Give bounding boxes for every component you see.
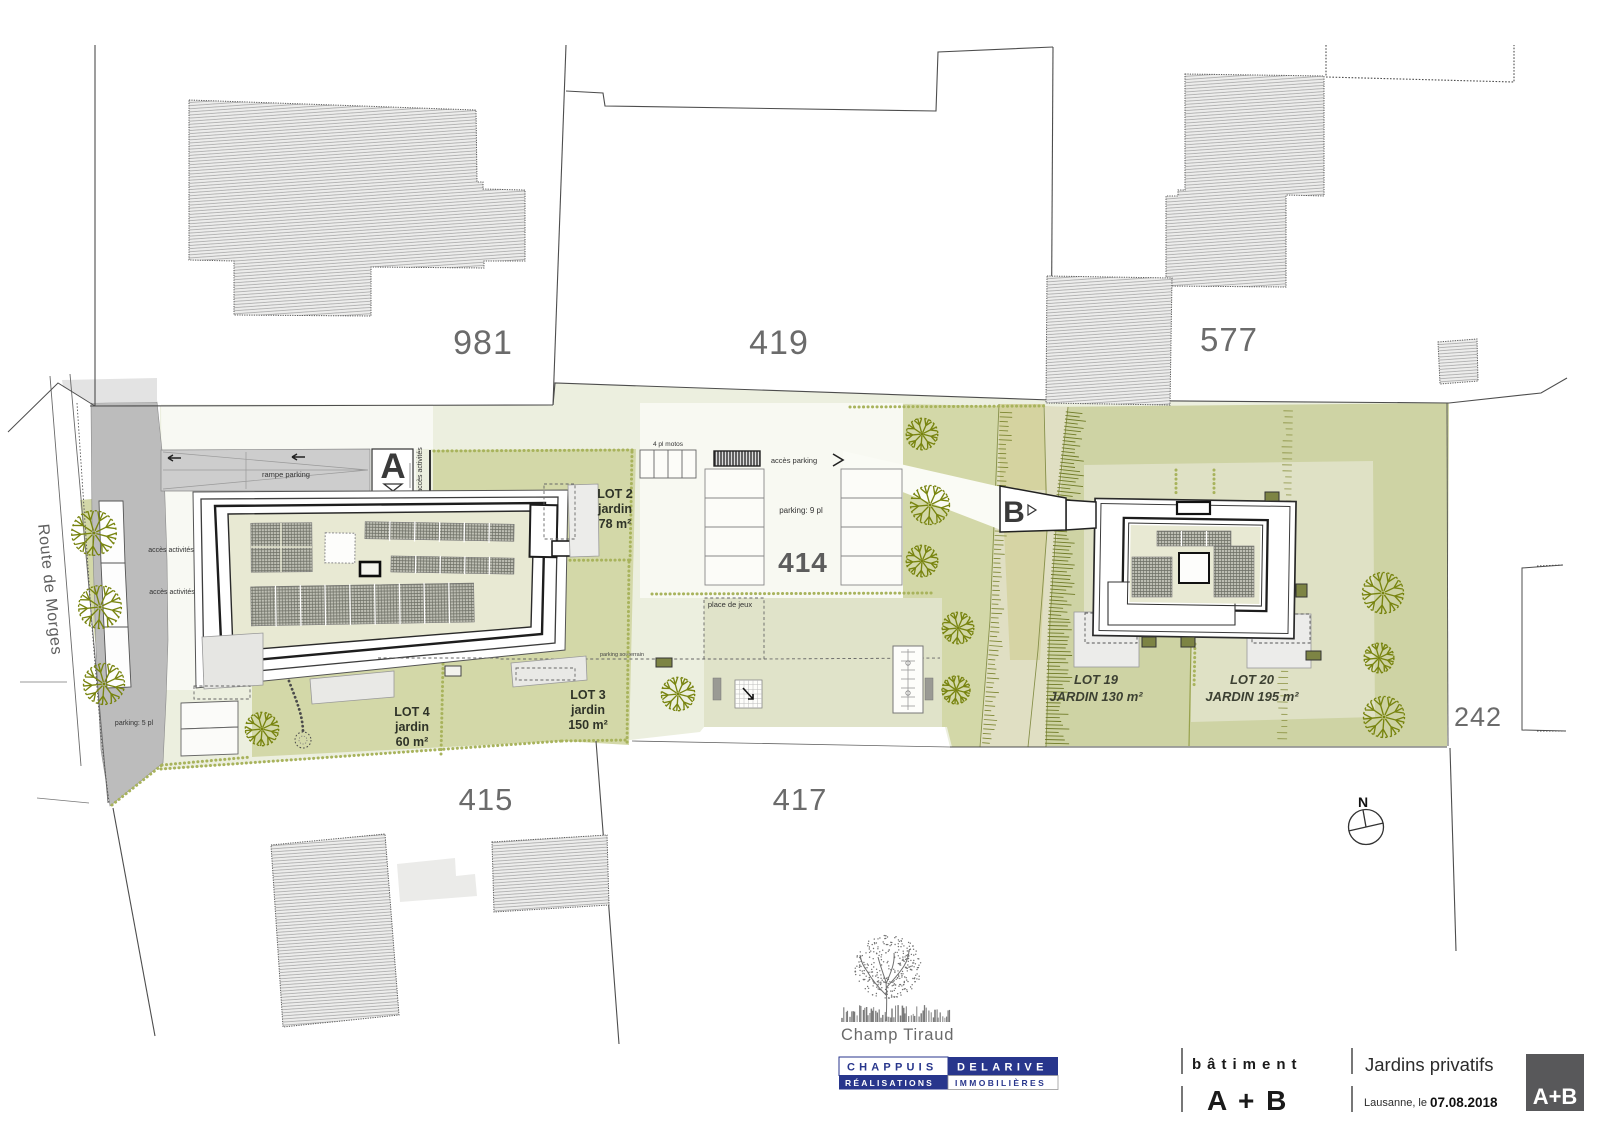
svg-text:accès parking: accès parking [771,456,817,465]
svg-text:150 m²: 150 m² [568,718,608,732]
svg-text:N: N [1358,794,1368,810]
svg-text:LOT 19: LOT 19 [1074,672,1119,687]
svg-text:accès activités: accès activités [417,447,424,493]
svg-text:414: 414 [778,547,828,578]
svg-text:577: 577 [1200,321,1258,358]
svg-text:parking souterrain: parking souterrain [600,652,644,658]
svg-text:accès activités: accès activités [148,547,194,554]
svg-text:DELARIVE: DELARIVE [957,1062,1048,1074]
svg-text:CHAPPUIS: CHAPPUIS [847,1062,937,1074]
svg-text:981: 981 [453,324,513,362]
svg-text:78 m²: 78 m² [599,517,632,531]
svg-text:242: 242 [1454,702,1502,732]
svg-text:bâtiment: bâtiment [1192,1056,1303,1073]
svg-text:parking: 9 pl: parking: 9 pl [779,506,823,515]
svg-text:Lausanne, le: Lausanne, le [1364,1097,1427,1109]
svg-text:B: B [1003,496,1025,529]
svg-text:JARDIN 195 m²: JARDIN 195 m² [1205,689,1299,704]
svg-text:LOT 20: LOT 20 [1230,672,1275,687]
svg-text:place de jeux: place de jeux [708,600,752,609]
svg-text:Jardins privatifs: Jardins privatifs [1365,1054,1494,1075]
svg-text:419: 419 [749,324,809,362]
svg-text:jardin: jardin [570,703,605,717]
svg-text:JARDIN 130 m²: JARDIN 130 m² [1049,689,1143,704]
svg-text:jardin: jardin [597,502,632,516]
svg-text:A + B: A + B [1207,1085,1288,1116]
svg-text:Champ Tiraud: Champ Tiraud [841,1026,954,1044]
svg-text:4 pl motos: 4 pl motos [653,441,684,448]
svg-text:LOT 3: LOT 3 [570,688,605,702]
svg-text:parking: 5 pl: parking: 5 pl [115,720,154,727]
svg-text:A+B: A+B [1533,1084,1578,1109]
svg-text:IMMOBILIÈRES: IMMOBILIÈRES [955,1078,1046,1088]
svg-text:rampe parking: rampe parking [262,470,310,479]
svg-text:LOT 4: LOT 4 [394,705,429,719]
svg-text:415: 415 [459,782,514,817]
svg-text:A: A [380,447,405,486]
svg-text:accès activités: accès activités [149,589,195,596]
svg-text:417: 417 [773,782,828,817]
svg-text:60 m²: 60 m² [396,735,429,749]
svg-text:LOT 2: LOT 2 [597,487,632,501]
svg-text:RÉALISATIONS: RÉALISATIONS [845,1078,934,1088]
svg-text:07.08.2018: 07.08.2018 [1430,1095,1498,1110]
svg-text:jardin: jardin [394,720,429,734]
